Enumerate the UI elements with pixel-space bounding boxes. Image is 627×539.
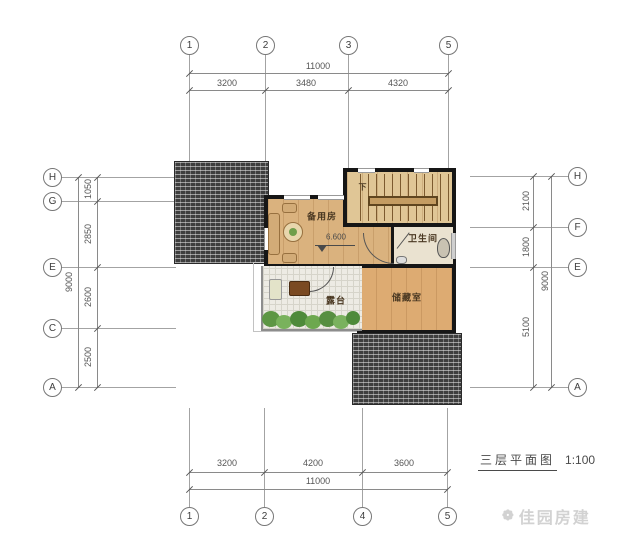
grid-line [362, 408, 363, 507]
window [451, 233, 456, 259]
dim-segment: 1800 [521, 237, 531, 257]
grid-line [348, 54, 349, 172]
dim-segment: 2100 [521, 191, 531, 211]
dim-segment: 3600 [394, 458, 414, 468]
drawing-title: 三层平面图 [478, 451, 557, 471]
sink [396, 256, 407, 264]
dim-overall-top: 11000 [306, 61, 330, 71]
dim-overall-right: 9000 [540, 271, 550, 291]
dim-segment: 3200 [217, 78, 237, 88]
stair-direction-label: 下 [359, 182, 368, 193]
grid-bubble-top-3: 3 [339, 36, 358, 55]
armchair [282, 203, 297, 213]
grid-bubble-right-E: E [568, 258, 587, 277]
dimension-line [189, 472, 447, 473]
grid-bubble-bottom-2: 2 [255, 507, 274, 526]
grid-bubble-right-H: H [568, 167, 587, 186]
room-label-terrace: 露台 [326, 294, 346, 307]
grid-line [189, 408, 190, 507]
grid-bubble-right-A: A [568, 378, 587, 397]
sofa [268, 213, 280, 255]
window [318, 195, 344, 200]
roof-hatch-top-left [174, 161, 269, 264]
dimension-line [97, 177, 98, 387]
grid-bubble-left-C: C [43, 319, 62, 338]
dimension-line [551, 176, 552, 387]
grid-line [447, 408, 448, 507]
stair-rail [368, 196, 438, 206]
dim-segment: 2850 [83, 224, 93, 244]
grid-line [264, 408, 265, 507]
watermark: 佳园房建 [502, 504, 591, 528]
dim-segment: 2600 [83, 287, 93, 307]
roof-hatch-bottom-right [352, 333, 462, 405]
grid-line [470, 176, 568, 177]
grid-bubble-left-G: G [43, 192, 62, 211]
dimension-line [533, 176, 534, 387]
grid-line [470, 387, 568, 388]
armchair [282, 253, 297, 263]
grid-line [470, 227, 568, 228]
level-mark-text: 6.600 [326, 233, 346, 242]
grid-bubble-left-H: H [43, 168, 62, 187]
dim-overall-left: 9000 [64, 272, 74, 292]
table-plant [289, 228, 297, 236]
dim-segment: 3480 [296, 78, 316, 88]
grid-line [470, 267, 568, 268]
grid-bubble-top-5: 5 [439, 36, 458, 55]
grid-bubble-bottom-1: 1 [180, 507, 199, 526]
dim-segment: 2500 [83, 347, 93, 367]
grid-bubble-left-E: E [43, 258, 62, 277]
grid-bubble-bottom-4: 4 [353, 507, 372, 526]
level-mark-triangle [317, 245, 327, 252]
window [284, 195, 310, 200]
dimension-line [189, 90, 448, 91]
dim-segment: 4200 [303, 458, 323, 468]
drawing-scale: 1:100 [565, 453, 595, 467]
dim-segment: 3200 [217, 458, 237, 468]
dim-segment: 4320 [388, 78, 408, 88]
lounge-chair [269, 279, 282, 300]
dim-segment: 5100 [521, 317, 531, 337]
toilet [437, 238, 450, 258]
terrace-table [289, 281, 310, 296]
grid-bubble-top-2: 2 [256, 36, 275, 55]
room-label-bathroom: 卫生间 [408, 232, 438, 245]
dimension-line [189, 73, 448, 74]
grid-bubble-right-F: F [568, 218, 587, 237]
dim-overall-bottom: 11000 [306, 476, 330, 486]
plant [346, 311, 360, 325]
dimension-line [78, 177, 79, 387]
dimension-line [189, 489, 447, 490]
room-label-spare: 备用房 [307, 210, 337, 223]
window [358, 168, 375, 173]
watermark-logo-icon [502, 507, 516, 525]
grid-bubble-bottom-5: 5 [438, 507, 457, 526]
title-block: 三层平面图 1:100 [478, 451, 595, 471]
watermark-text: 佳园房建 [519, 504, 591, 528]
room-label-storage: 储藏室 [392, 291, 422, 304]
grid-line [189, 54, 190, 161]
floor-plan-sheet: 1 2 3 5 1 2 4 5 H G E C A H F E A 11000 … [0, 0, 627, 539]
window [414, 168, 429, 173]
dim-segment: 1050 [83, 179, 93, 199]
grid-bubble-top-1: 1 [180, 36, 199, 55]
grid-bubble-left-A: A [43, 378, 62, 397]
